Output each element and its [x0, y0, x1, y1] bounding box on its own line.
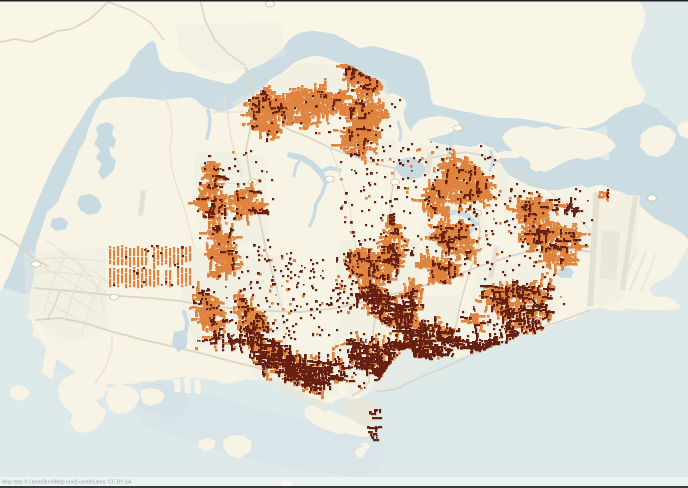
svg-text:Map data © OpenStreetMap (and): Map data © OpenStreetMap (and) contribut… — [2, 479, 133, 486]
